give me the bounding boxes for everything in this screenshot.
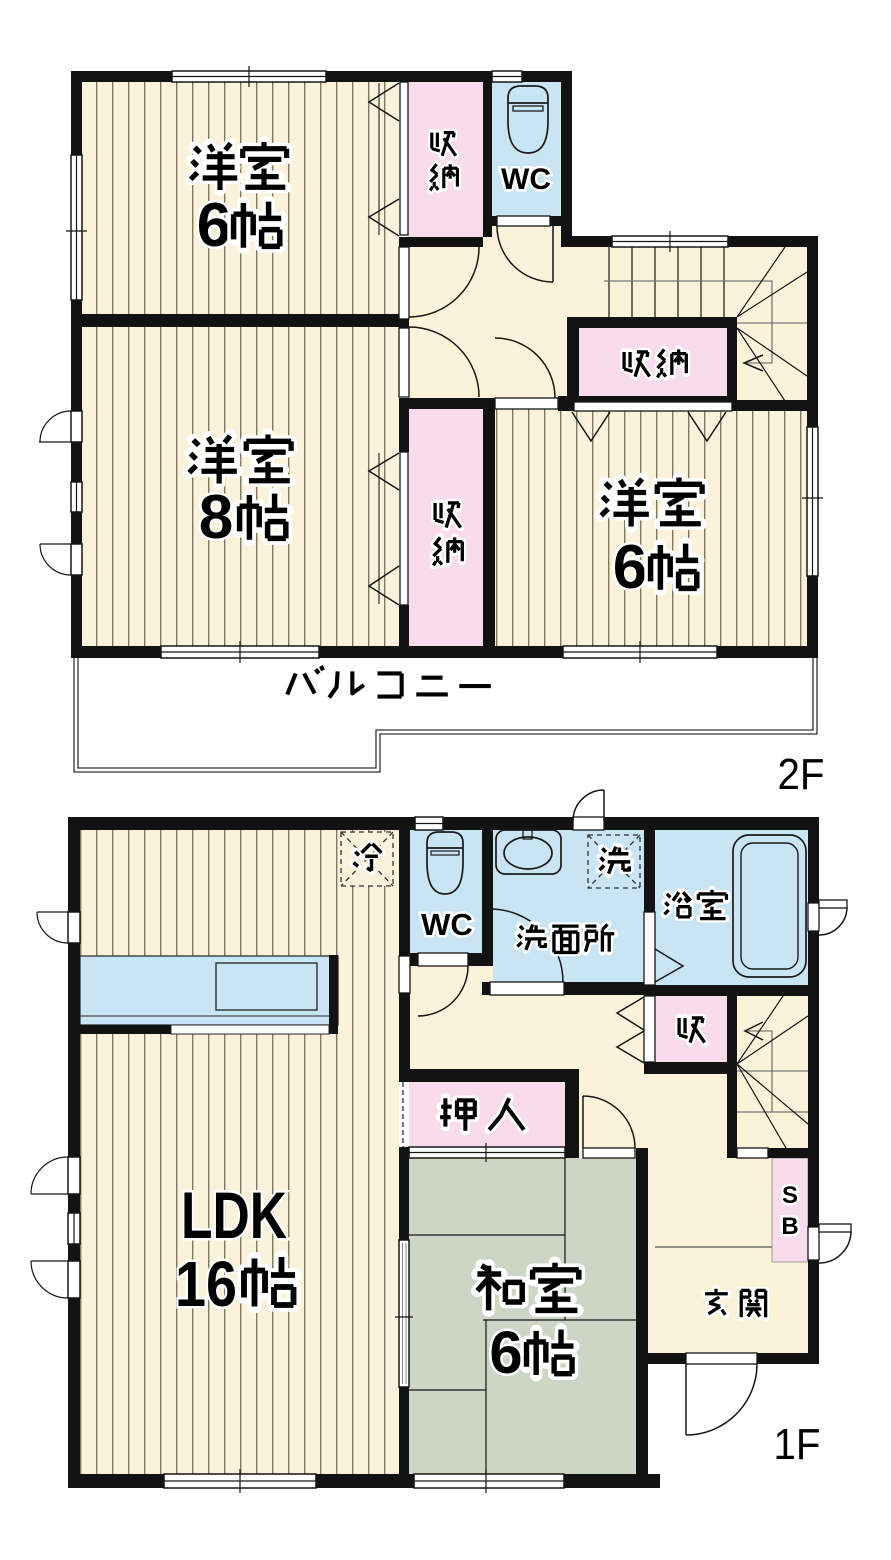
svg-text:2F: 2F <box>778 750 825 799</box>
svg-text:6: 6 <box>489 1319 522 1386</box>
svg-text:1F: 1F <box>774 1420 821 1469</box>
svg-text:6: 6 <box>197 191 231 260</box>
svg-text:WC: WC <box>501 163 551 196</box>
svg-text:16: 16 <box>175 1248 237 1320</box>
svg-text:B: B <box>781 1213 798 1240</box>
svg-text:S: S <box>782 1182 798 1209</box>
svg-text:6: 6 <box>613 533 647 602</box>
svg-text:WC: WC <box>421 907 473 942</box>
svg-text:LDK: LDK <box>181 1178 287 1252</box>
svg-text:8: 8 <box>199 483 233 552</box>
